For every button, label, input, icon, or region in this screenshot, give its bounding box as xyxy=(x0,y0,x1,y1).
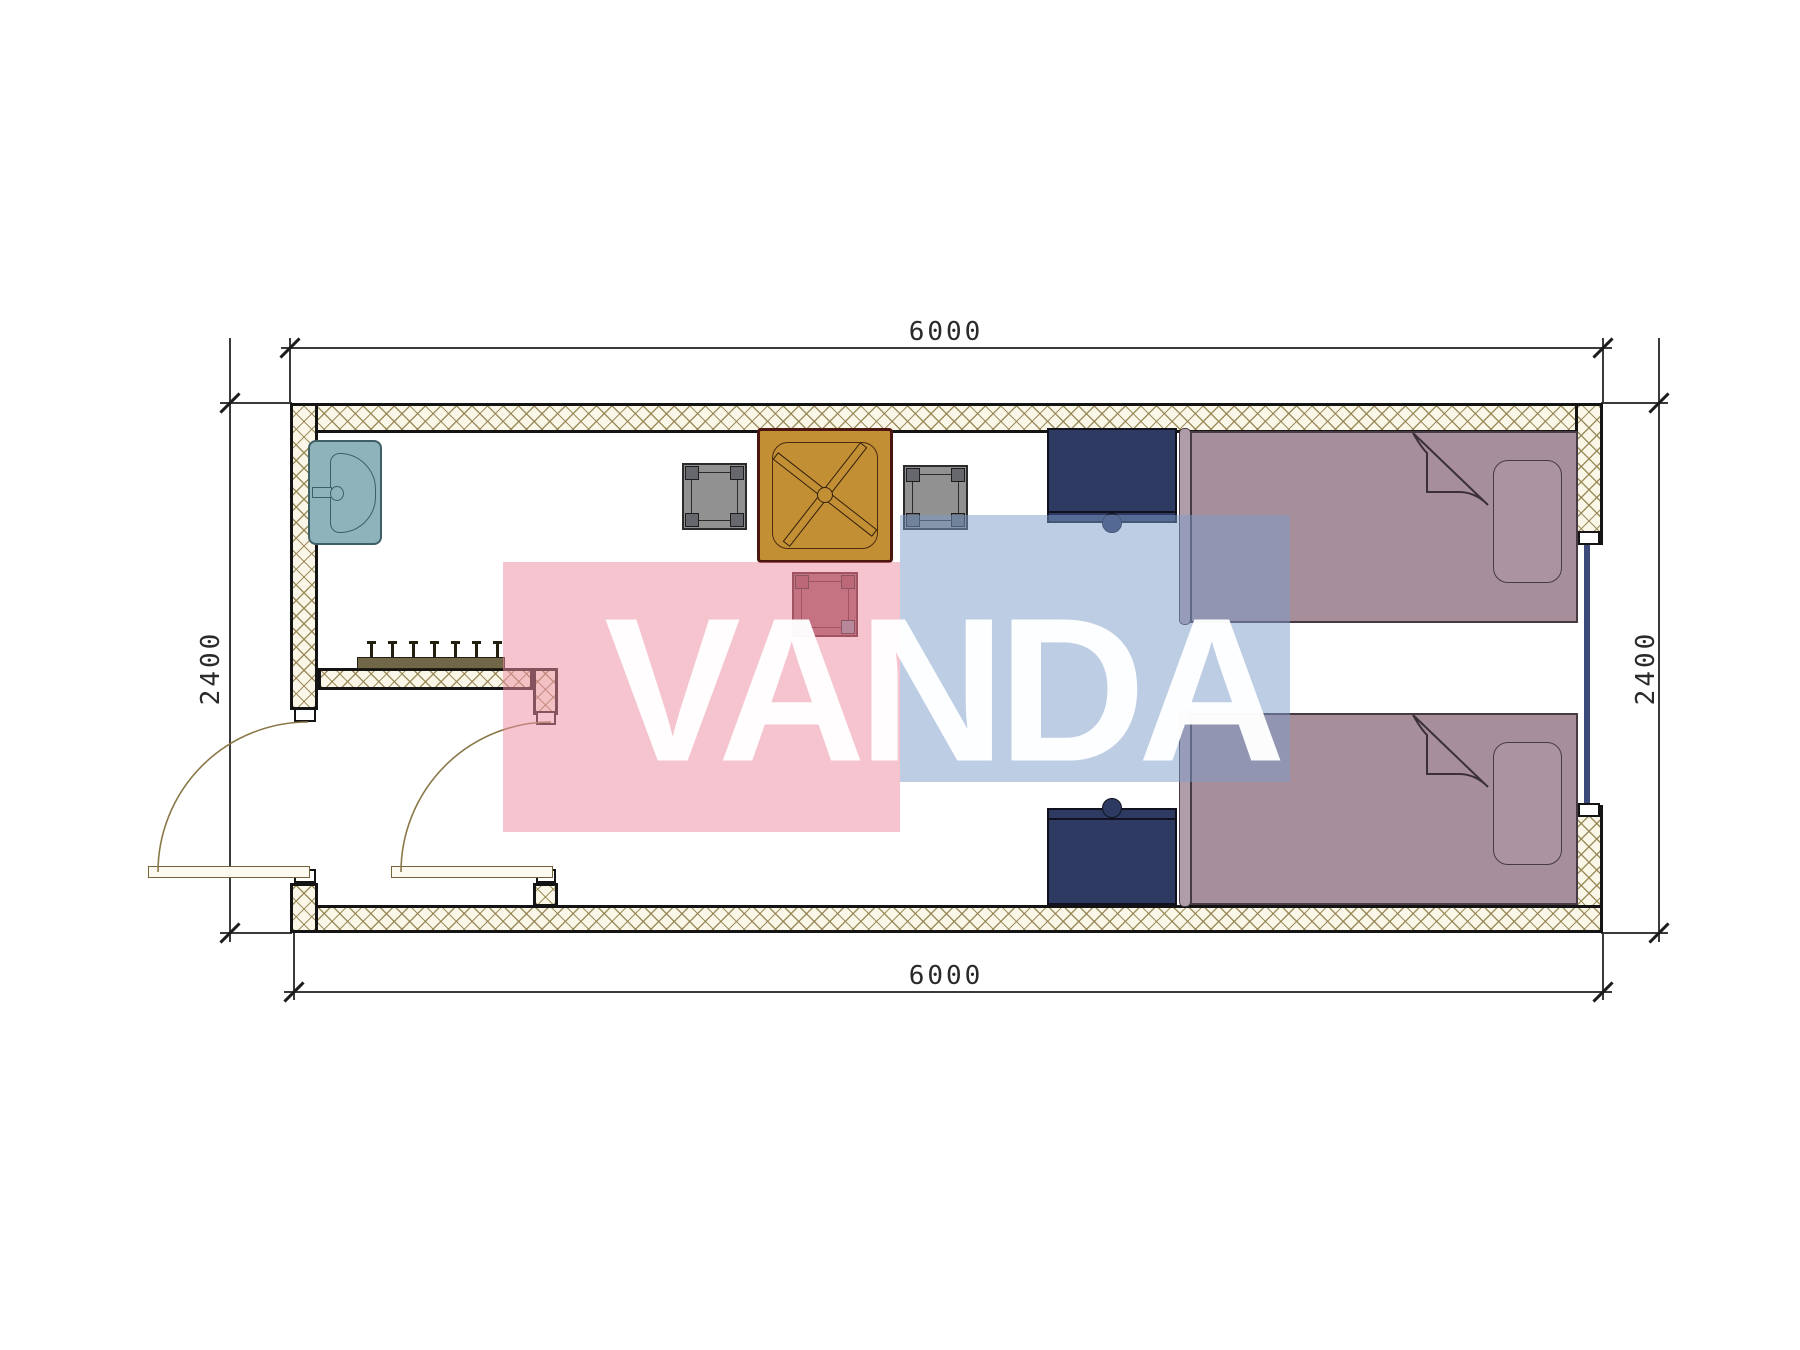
bed-bottom-blanket-fold xyxy=(1413,715,1488,787)
bed-top-blanket-fold xyxy=(1413,433,1488,505)
watermark-text: VANDA xyxy=(604,573,1278,809)
floor-plan-canvas: 6000 6000 2400 2400 xyxy=(0,0,1800,1350)
